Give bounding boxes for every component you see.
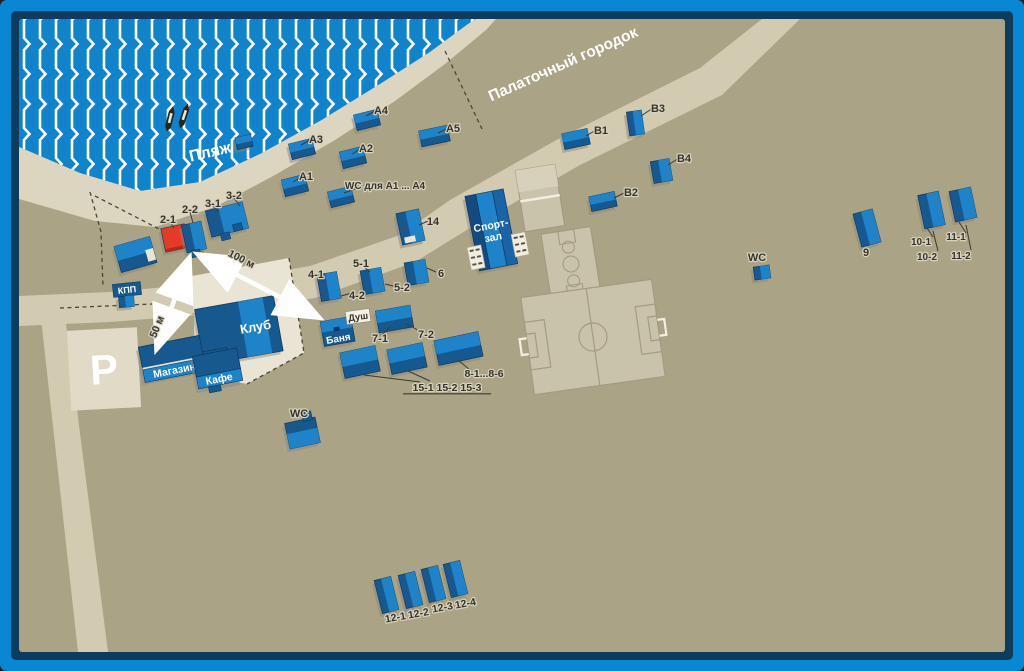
map-label-A1: A1 [299,171,313,183]
map-label-10-1: 10-1 [911,237,931,248]
map-label-10-2: 10-2 [917,252,937,263]
football-field [514,278,672,395]
parking-label: P [89,345,119,393]
map-label-8-1-8-6: 8-1...8-6 [464,368,503,380]
map-label-11-2: 11-2 [951,251,971,262]
map-label-4-2: 4-2 [349,290,365,302]
map-label-A2: A2 [359,143,373,155]
map-label-A5: A5 [446,123,460,135]
map-label-B1: B1 [594,125,608,137]
map-label-5-2: 5-2 [394,282,410,294]
map-label-3-1: 3-1 [205,198,221,210]
kpp-label: КПП [117,284,136,296]
map-label-3-2: 3-2 [226,190,242,202]
map-label-A4: A4 [374,105,389,117]
map-canvas: P [0,0,1024,671]
map-label-A3: A3 [309,134,323,146]
parking-area: P [67,327,141,411]
map-label-WC: WC [748,252,766,264]
map-label-7-1: 7-1 [372,333,388,345]
building-B4 [647,159,673,187]
map-label-4-1: 4-1 [308,269,324,281]
map-label-14: 14 [427,216,440,228]
kpp-badge: КПП [112,282,141,298]
map-label-9: 9 [863,247,869,259]
map-label-15-1-15-2-15-3: 15-1 15-2 15-3 [413,382,482,394]
map-label-B4: B4 [677,153,692,165]
map-label-B3: B3 [651,103,665,115]
map-label-2-1: 2-1 [160,214,176,226]
map-label-WC-для-А1-А4: WC для А1 ... А4 [345,181,426,192]
building-wc-right [750,265,771,283]
map-label-7-2: 7-2 [418,329,434,341]
map-label-6: 6 [438,268,444,280]
map-label-5-1: 5-1 [353,258,369,270]
map-label-B2: B2 [624,187,638,199]
map-label-11-1: 11-1 [946,232,966,243]
camp-map: P [0,0,1024,671]
map-label-WC: WC [290,408,308,420]
map-label-2-2: 2-2 [182,204,198,216]
